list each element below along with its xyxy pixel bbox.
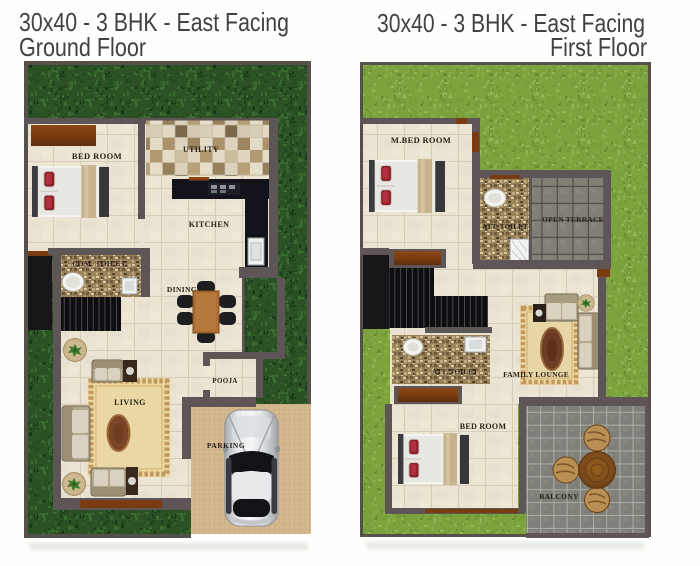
svg-text:FAMILY LOUNGE: FAMILY LOUNGE (503, 370, 569, 379)
svg-text:BALCONY: BALCONY (539, 492, 579, 501)
svg-text:LIVING: LIVING (114, 398, 146, 407)
svg-text:M.BED ROOM: M.BED ROOM (391, 135, 451, 145)
svg-text:BED ROOM: BED ROOM (72, 151, 122, 161)
svg-text:OPEN TERRACE: OPEN TERRACE (542, 215, 604, 224)
svg-text:POOJA: POOJA (212, 377, 237, 385)
svg-text:ATT. TOILET: ATT. TOILET (432, 368, 478, 376)
svg-text:KITCHEN: KITCHEN (189, 220, 230, 229)
svg-text:PARKING: PARKING (207, 441, 245, 450)
svg-text:First Floor: First Floor (550, 32, 647, 62)
svg-text:BED ROOM: BED ROOM (460, 422, 507, 431)
svg-text:UTILITY: UTILITY (183, 145, 219, 154)
svg-text:COM. TOILET: COM. TOILET (72, 259, 126, 268)
svg-text:Ground Floor: Ground Floor (19, 32, 146, 62)
svg-text:ATT. TOILET: ATT. TOILET (482, 223, 528, 231)
